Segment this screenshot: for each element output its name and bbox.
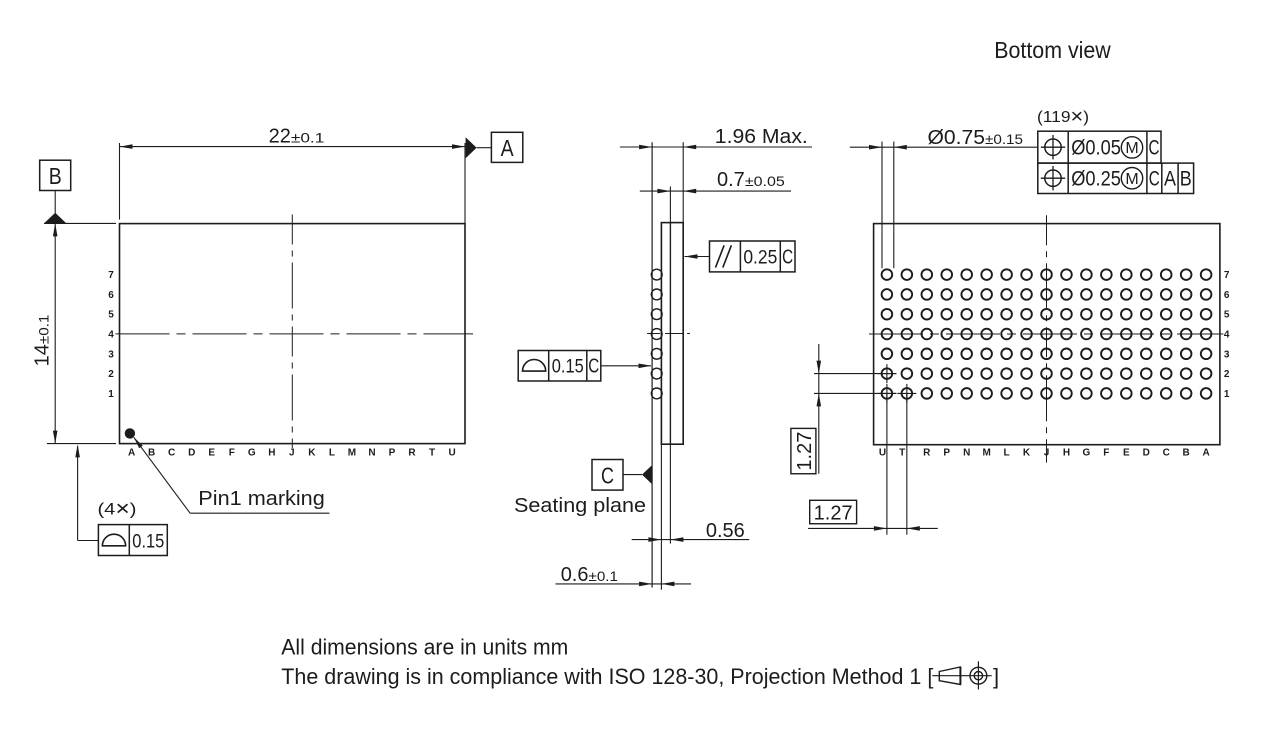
svg-text:0.15: 0.15: [132, 531, 164, 552]
svg-text:P: P: [943, 448, 950, 459]
svg-text:C: C: [1163, 448, 1170, 459]
svg-text:0.15: 0.15: [552, 356, 584, 377]
svg-text:1.27: 1.27: [814, 502, 853, 524]
svg-text:J: J: [1044, 448, 1050, 459]
svg-text:5: 5: [108, 310, 114, 321]
svg-text:T: T: [899, 448, 905, 459]
svg-text:2: 2: [108, 369, 114, 380]
svg-text:Seating plane: Seating plane: [514, 495, 646, 517]
svg-text:H: H: [1063, 448, 1070, 459]
svg-text:6: 6: [108, 290, 114, 301]
svg-text:D: D: [1143, 448, 1150, 459]
svg-text:A: A: [1202, 448, 1209, 459]
svg-text:4: 4: [108, 330, 114, 341]
svg-text:The drawing is in compliance w: The drawing is in compliance with ISO 12…: [281, 664, 933, 689]
svg-text:]: ]: [993, 664, 999, 689]
svg-text:M: M: [982, 448, 990, 459]
svg-text:22±0.1: 22±0.1: [269, 126, 325, 148]
svg-text:N: N: [963, 448, 970, 459]
svg-text:M: M: [1125, 140, 1138, 157]
svg-text:F: F: [1103, 448, 1109, 459]
svg-text:D: D: [188, 448, 195, 459]
svg-text:0.7±0.05: 0.7±0.05: [717, 169, 785, 191]
svg-text:4: 4: [1224, 330, 1230, 341]
svg-text:B: B: [1183, 448, 1190, 459]
svg-text:Bottom view: Bottom view: [994, 37, 1111, 63]
svg-text:G: G: [248, 448, 256, 459]
svg-text:All dimensions are in units mm: All dimensions are in units mm: [281, 635, 568, 660]
svg-text:E: E: [208, 448, 215, 459]
svg-text:J: J: [289, 448, 295, 459]
svg-text:B: B: [148, 448, 155, 459]
svg-text:Ø0.75±0.15: Ø0.75±0.15: [928, 127, 1024, 149]
svg-text:C: C: [782, 247, 793, 269]
svg-text:2: 2: [1224, 369, 1230, 380]
svg-text:1: 1: [108, 389, 114, 400]
svg-text:C: C: [588, 355, 599, 377]
svg-text:(119×): (119×): [1037, 106, 1089, 128]
svg-text:(4×): (4×): [98, 498, 137, 521]
svg-text:3: 3: [1224, 349, 1230, 360]
svg-text:E: E: [1123, 448, 1130, 459]
svg-text:Pin1 marking: Pin1 marking: [198, 488, 324, 510]
svg-text:G: G: [1083, 448, 1091, 459]
svg-text:14±0.1: 14±0.1: [32, 314, 54, 366]
svg-text:M: M: [1125, 171, 1138, 188]
svg-text:B: B: [1180, 168, 1192, 191]
svg-text:A: A: [1164, 168, 1176, 191]
svg-text:U: U: [448, 448, 455, 459]
svg-text:7: 7: [1224, 270, 1230, 281]
svg-text:1.27: 1.27: [794, 432, 816, 471]
svg-text:A: A: [128, 448, 135, 459]
svg-text:1.96 Max.: 1.96 Max.: [715, 126, 808, 148]
svg-text:C: C: [601, 462, 614, 488]
svg-text:K: K: [1023, 448, 1031, 459]
svg-text:P: P: [389, 448, 396, 459]
svg-text:K: K: [308, 448, 316, 459]
svg-text:C: C: [168, 448, 175, 459]
svg-text:Ø0.25: Ø0.25: [1071, 168, 1121, 191]
svg-text:F: F: [229, 448, 235, 459]
svg-text:C: C: [1149, 137, 1160, 160]
svg-text:Ø0.05: Ø0.05: [1071, 137, 1121, 160]
svg-text:3: 3: [108, 349, 114, 360]
svg-text:0.56: 0.56: [706, 520, 745, 542]
svg-text:T: T: [429, 448, 435, 459]
svg-text:R: R: [923, 448, 931, 459]
svg-text:B: B: [49, 163, 62, 189]
svg-text:0.25: 0.25: [743, 248, 777, 269]
svg-text:L: L: [1004, 448, 1010, 459]
svg-text:5: 5: [1224, 310, 1230, 321]
svg-text:0.6±0.1: 0.6±0.1: [561, 564, 619, 586]
svg-text:7: 7: [108, 270, 114, 281]
svg-text:M: M: [348, 448, 356, 459]
svg-text:H: H: [268, 448, 275, 459]
svg-text:C: C: [1149, 168, 1160, 191]
svg-text:R: R: [408, 448, 416, 459]
svg-text:U: U: [879, 448, 886, 459]
svg-text:L: L: [329, 448, 335, 459]
svg-text:N: N: [368, 448, 375, 459]
svg-text:6: 6: [1224, 290, 1230, 301]
svg-text:A: A: [501, 135, 515, 161]
svg-text:1: 1: [1224, 389, 1230, 400]
